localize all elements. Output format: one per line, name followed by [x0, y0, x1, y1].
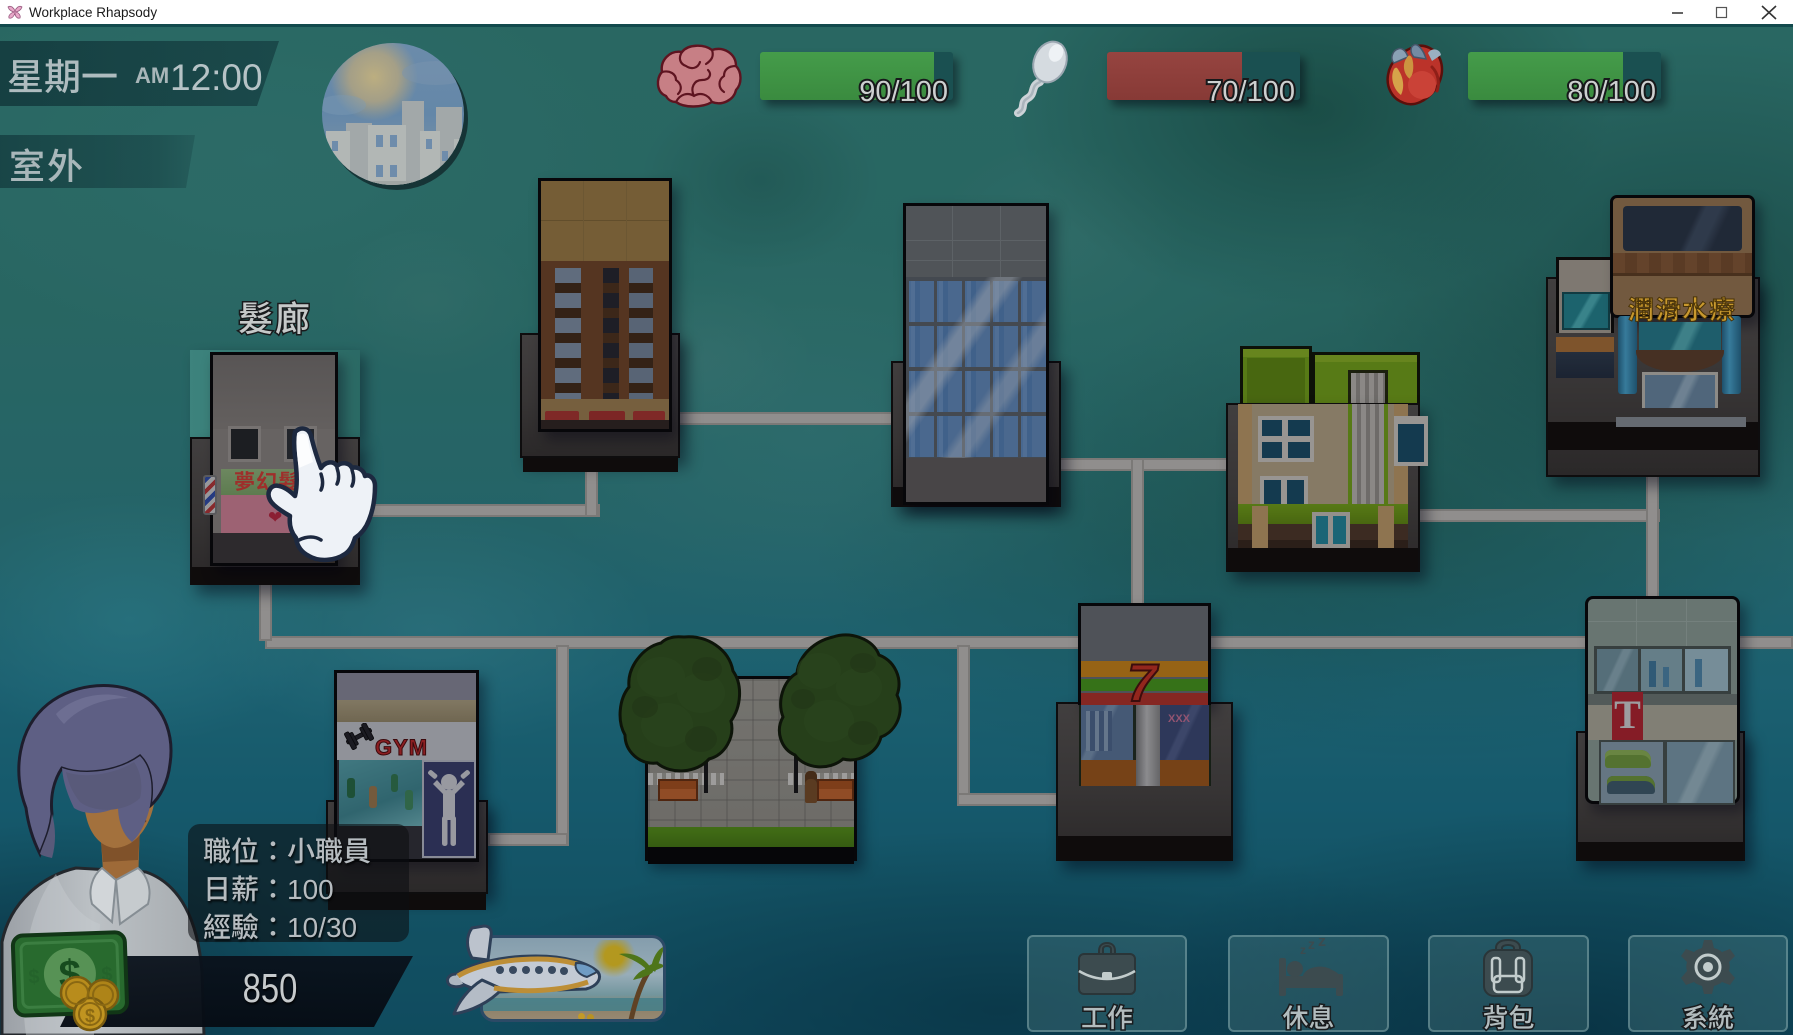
svg-text:$: $ — [85, 1006, 95, 1026]
svg-text:z: z — [1318, 938, 1326, 950]
svg-text:z: z — [1300, 943, 1306, 957]
svg-text:$: $ — [28, 966, 40, 988]
svg-text:z: z — [1308, 938, 1315, 952]
